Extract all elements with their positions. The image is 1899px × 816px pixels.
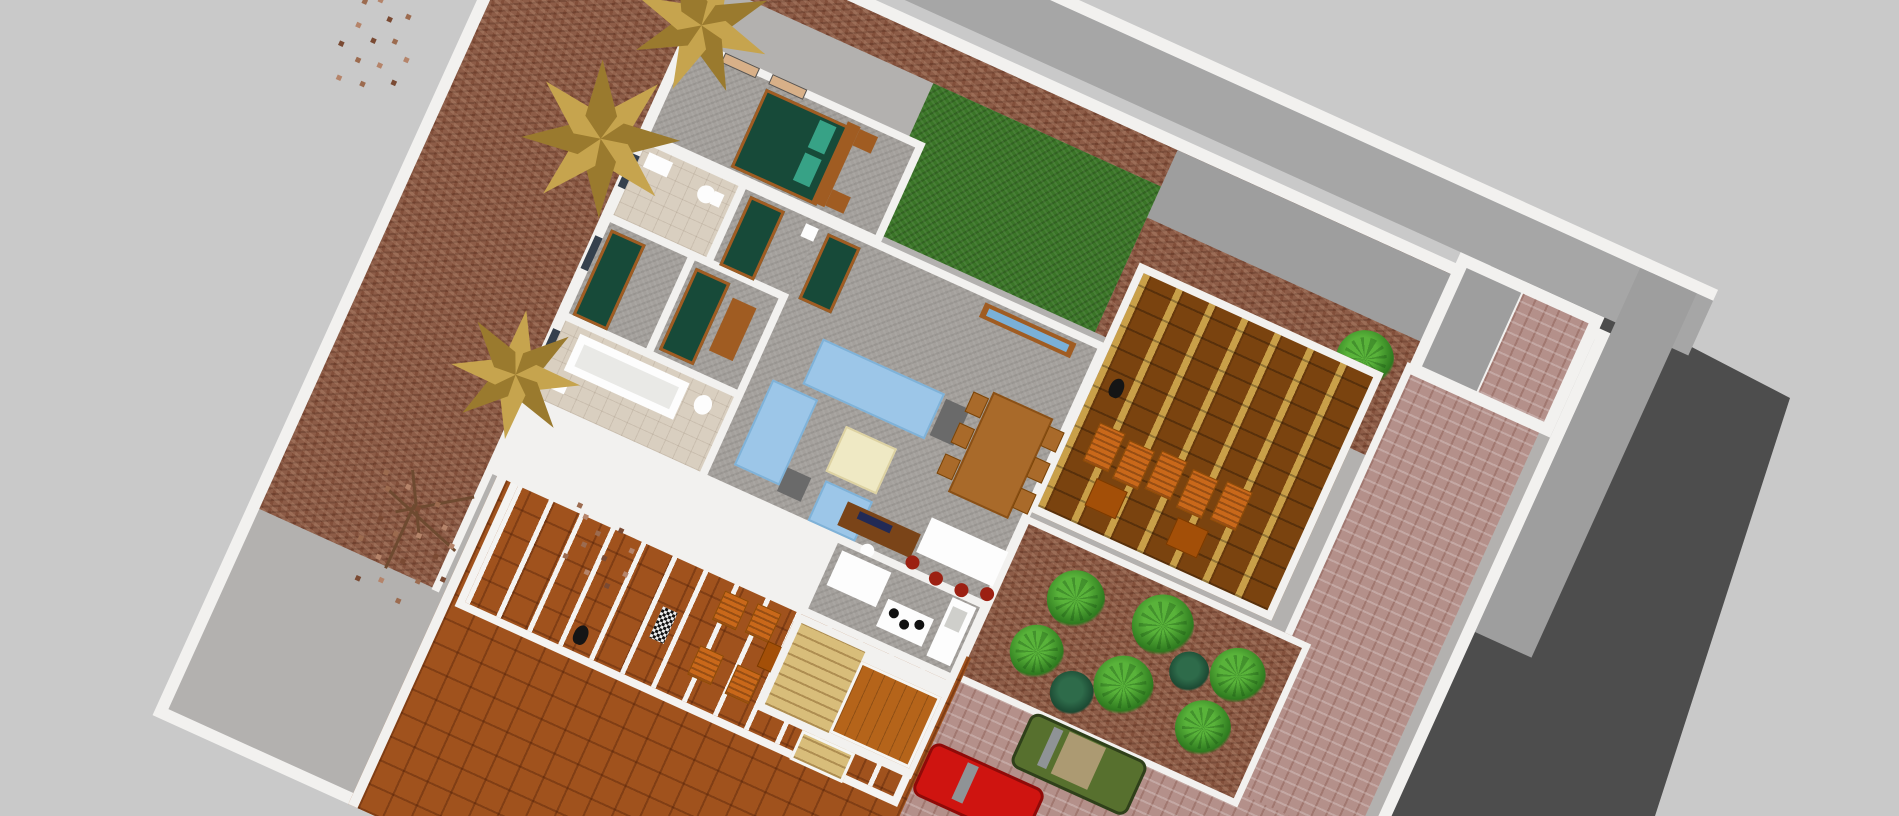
property-plot — [132, 0, 1729, 816]
render-viewport[interactable] — [0, 0, 1899, 816]
